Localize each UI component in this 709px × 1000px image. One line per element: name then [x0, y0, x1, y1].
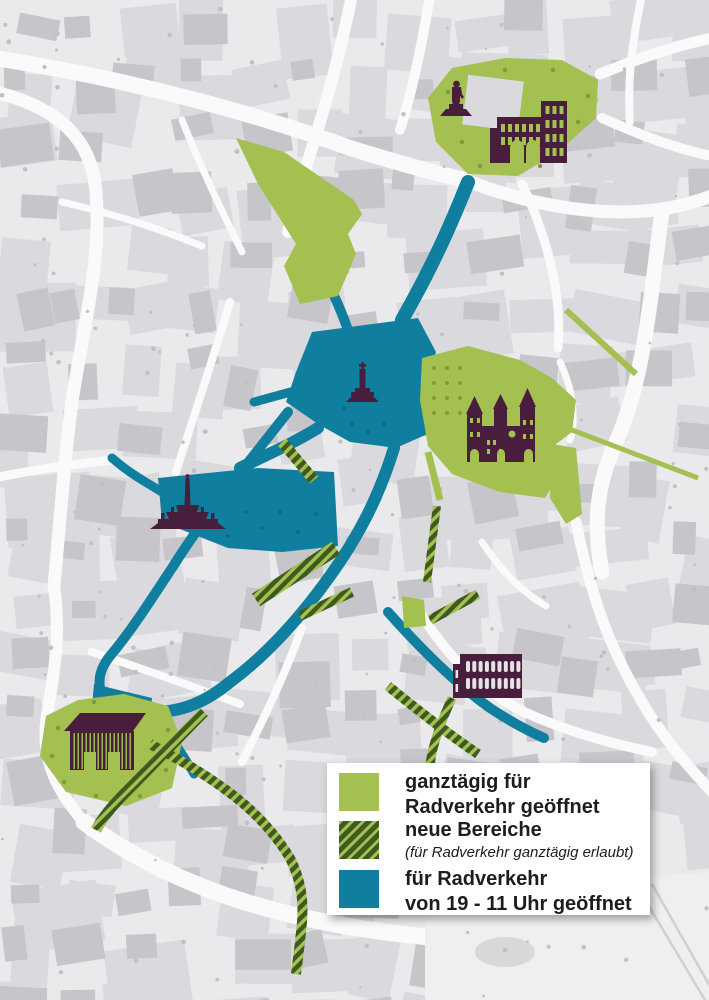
legend-label-line: für Radverkehr — [405, 867, 632, 892]
legend-label-line: von 19 - 11 Uhr geöffnet — [405, 892, 632, 917]
basilica-icon — [453, 654, 522, 698]
market-hall-icon — [64, 713, 146, 770]
teal-solid-swatch — [339, 870, 379, 908]
legend-label-line: neue Bereiche — [405, 818, 633, 843]
green-solid-swatch — [339, 773, 379, 811]
legend: ganztägig für Radverkehr geöffnet neue B… — [327, 763, 650, 915]
legend-label-subline: (für Radverkehr ganztägig erlaubt) — [405, 843, 633, 863]
green-hatched-swatch — [339, 821, 379, 859]
legend-item-open-19-11: für Radverkehr von 19 - 11 Uhr geöffnet — [339, 870, 632, 917]
legend-label-line: Radverkehr geöffnet — [405, 795, 600, 820]
map-poster: ganztägig für Radverkehr geöffnet neue B… — [0, 0, 709, 1000]
legend-item-open-all-day: ganztägig für Radverkehr geöffnet — [339, 773, 600, 820]
legend-label-line: ganztägig für — [405, 770, 600, 795]
legend-item-new-areas: neue Bereiche (für Radverkehr ganztägig … — [339, 821, 633, 863]
